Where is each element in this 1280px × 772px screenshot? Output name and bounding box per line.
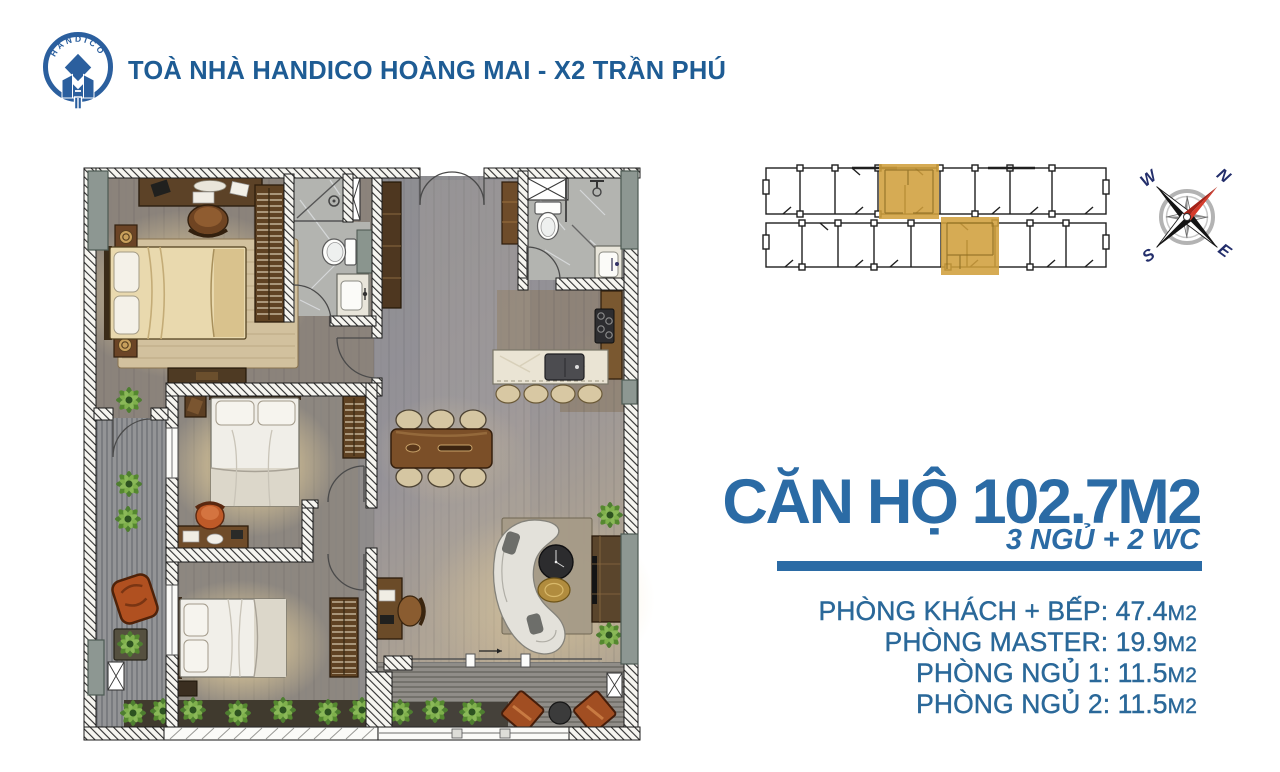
svg-text:S: S [1139,245,1158,266]
svg-text:E: E [1215,240,1235,262]
svg-text:N: N [1213,165,1234,187]
